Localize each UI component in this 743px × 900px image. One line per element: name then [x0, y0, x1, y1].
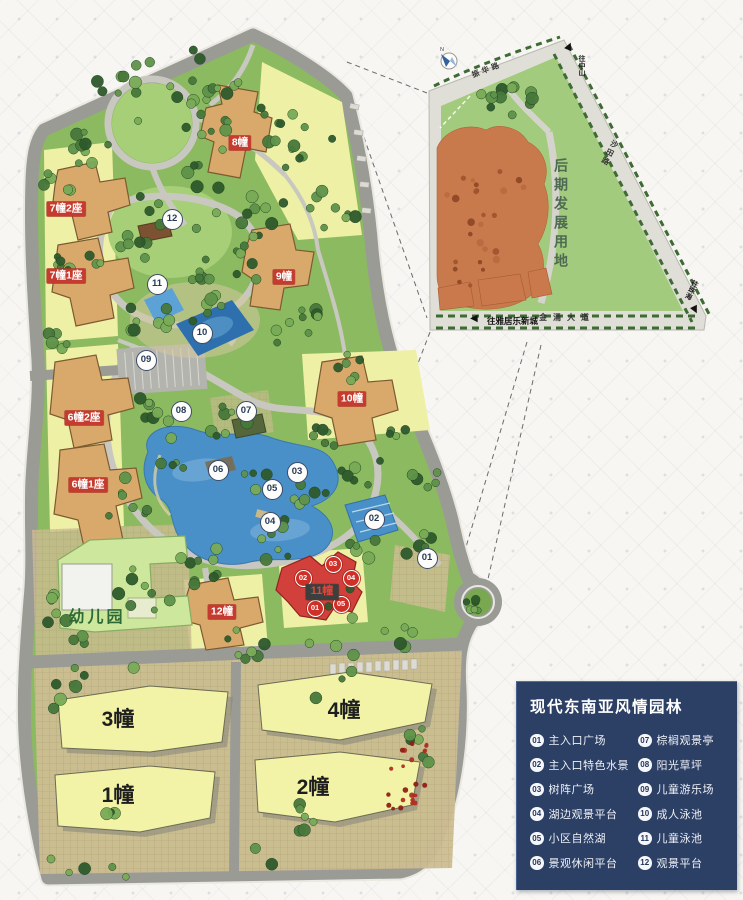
- legend-item-label: 阳光草坪: [657, 757, 703, 773]
- legend-column-left: 01主入口广场02主入口特色水景03树阵广场04湖边观景平台05小区自然湖06景…: [530, 728, 638, 875]
- scanned-masterplan-page: N: [0, 0, 743, 900]
- legend-item-number: 05: [530, 832, 544, 846]
- legend-item-number: 10: [638, 807, 652, 821]
- legend-item: 11儿童泳池: [638, 826, 727, 851]
- legend-item-label: 棕榈观景亭: [657, 732, 715, 748]
- legend-item: 08阳光草坪: [638, 753, 727, 778]
- compass-n-label: N: [440, 47, 444, 53]
- legend-item-number: 11: [638, 832, 652, 846]
- legend-title: 现代东南亚风情园林: [530, 695, 727, 717]
- legend-item: 03树阵广场: [530, 777, 638, 802]
- legend-item-number: 12: [638, 856, 652, 870]
- direction-to-yajule-town: 往雅居乐新城: [487, 315, 538, 327]
- legend-item-label: 景观休闲平台: [549, 855, 618, 871]
- direction-to-zhongshan: 往中山: [576, 55, 586, 76]
- legend-item: 12观景平台: [638, 851, 727, 876]
- legend-item-label: 树阵广场: [549, 781, 595, 797]
- legend-item-number: 03: [530, 783, 544, 797]
- road-name-jinyong-avenue: 金涌大道: [539, 312, 595, 323]
- legend-item-label: 主入口广场: [549, 732, 607, 748]
- legend-item-number: 01: [530, 734, 544, 748]
- legend-item: 05小区自然湖: [530, 826, 638, 851]
- legend-panel: 现代东南亚风情园林 01主入口广场02主入口特色水景03树阵广场04湖边观景平台…: [516, 681, 737, 890]
- legend-item-number: 08: [638, 758, 652, 772]
- legend-item: 06景观休闲平台: [530, 851, 638, 876]
- legend-item-label: 儿童游乐场: [657, 781, 715, 797]
- legend-item: 04湖边观景平台: [530, 802, 638, 827]
- legend-item-label: 湖边观景平台: [549, 806, 618, 822]
- legend-item: 09儿童游乐场: [638, 777, 727, 802]
- legend-item-number: 02: [530, 758, 544, 772]
- arrow-west-icon: ◀: [470, 313, 478, 324]
- compass-icon: N: [440, 47, 457, 69]
- legend-item-label: 观景平台: [657, 855, 703, 871]
- legend-item: 01主入口广场: [530, 728, 638, 753]
- legend-item: 02主入口特色水景: [530, 753, 638, 778]
- legend-item-number: 04: [530, 807, 544, 821]
- legend-item-label: 小区自然湖: [549, 830, 607, 846]
- legend-item-label: 主入口特色水景: [549, 757, 630, 773]
- legend-column-right: 07棕榈观景亭08阳光草坪09儿童游乐场10成人泳池11儿童泳池12观景平台: [638, 728, 727, 875]
- legend-item: 07棕榈观景亭: [638, 728, 727, 753]
- legend-item-number: 09: [638, 783, 652, 797]
- legend-item-number: 06: [530, 856, 544, 870]
- current-phase-area: [437, 126, 552, 310]
- legend-item-label: 成人泳池: [657, 806, 703, 822]
- legend-item: 10成人泳池: [638, 802, 727, 827]
- legend-item-label: 儿童泳池: [657, 830, 703, 846]
- legend-item-number: 07: [638, 734, 652, 748]
- later-development-label: 后期发展用地: [551, 158, 571, 272]
